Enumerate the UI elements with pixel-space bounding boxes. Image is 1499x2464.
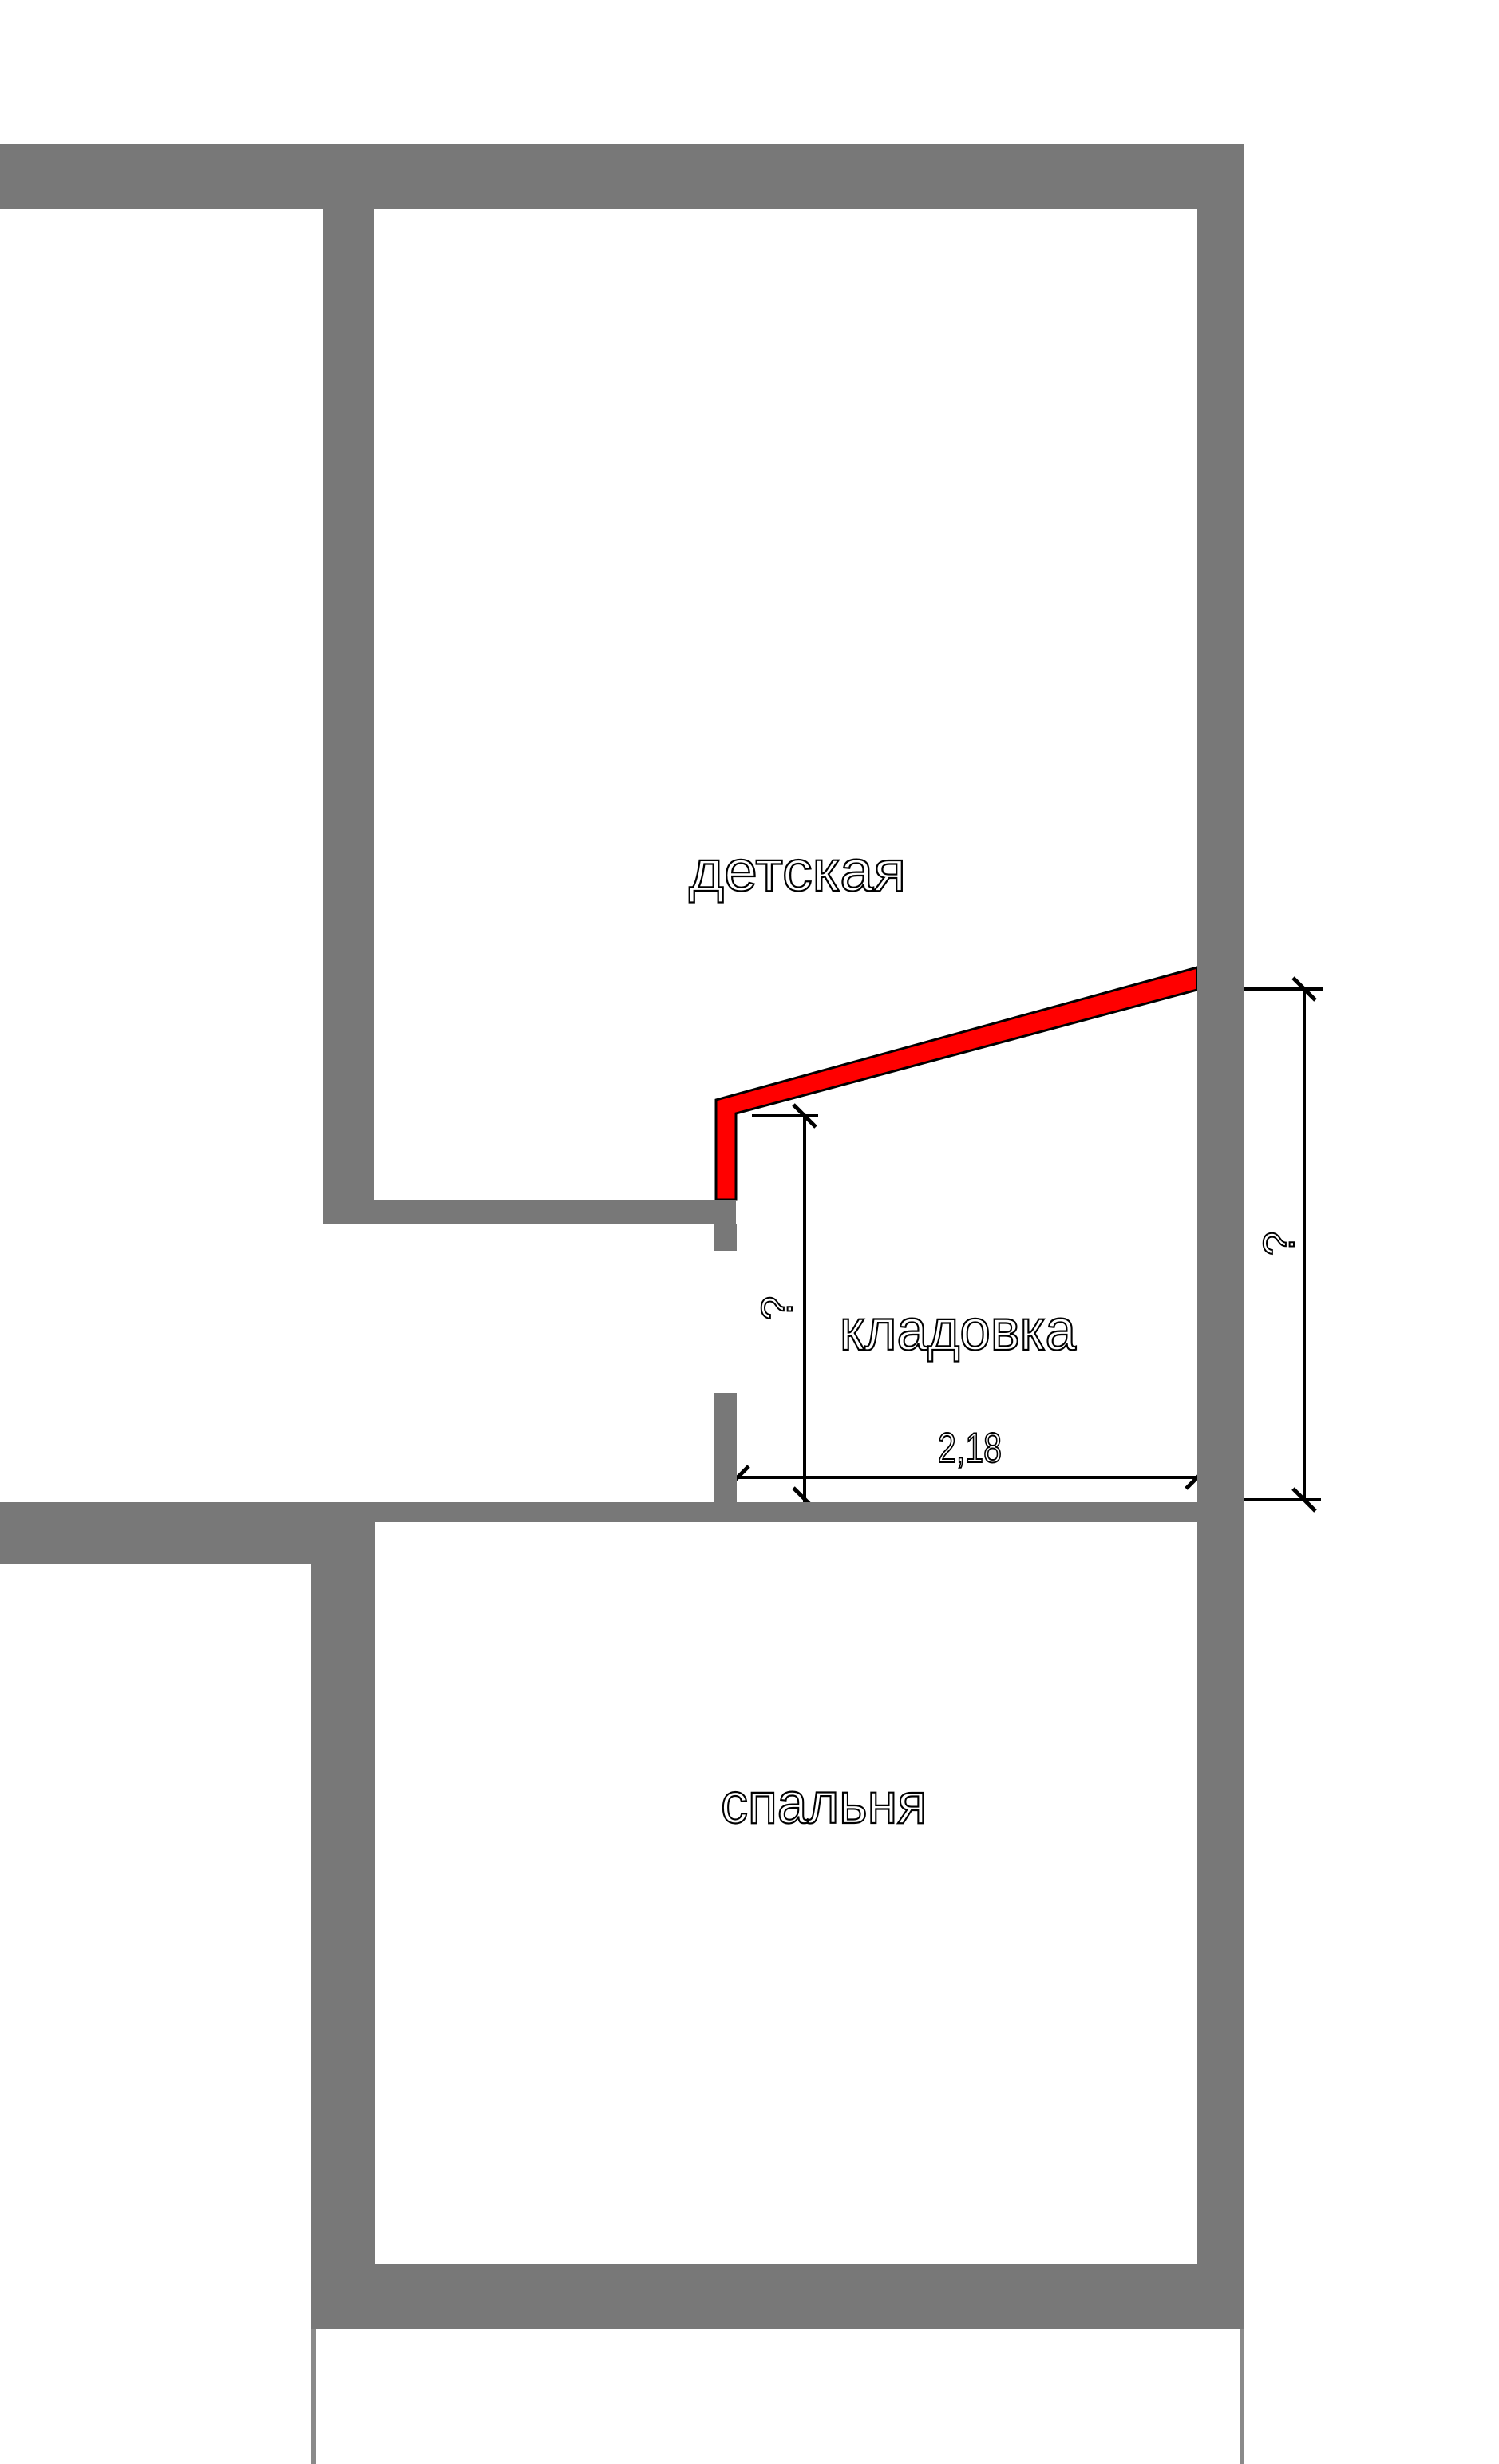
svg-text:?: ?: [752, 1296, 801, 1321]
svg-text:2,18: 2,18: [938, 1425, 1002, 1472]
svg-text:?: ?: [1254, 1232, 1303, 1256]
svg-text:спальня: спальня: [721, 1772, 927, 1836]
svg-text:кладовка: кладовка: [840, 1299, 1077, 1363]
svg-text:детская: детская: [689, 840, 906, 904]
